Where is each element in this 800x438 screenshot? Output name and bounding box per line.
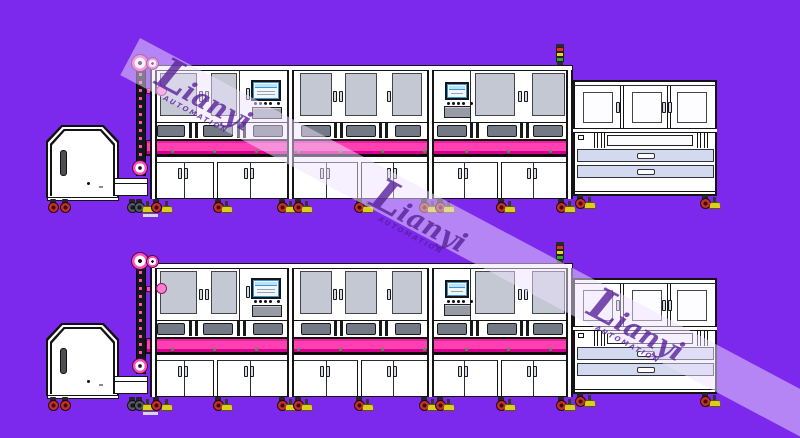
module-boundary-post-2 <box>427 268 434 397</box>
mid-level-window <box>487 125 517 137</box>
viewing-window <box>160 73 197 116</box>
mid-band-divider <box>189 123 192 138</box>
main-line-top-rail <box>150 263 573 269</box>
cabinet-handle-pair <box>244 366 254 377</box>
leveling-foot <box>161 397 171 411</box>
leveling-foot <box>161 199 171 213</box>
drawer-handle <box>637 169 655 175</box>
scale-dash-mark <box>143 412 158 415</box>
mid-band-divider <box>334 123 337 138</box>
hmi-screen-toolbar <box>449 284 465 288</box>
machine-line-drawing: Lianyi AUTOMATION Lianyi AUTOMATION Lian… <box>0 0 800 438</box>
station-window <box>583 290 613 321</box>
mid-level-window <box>253 323 283 335</box>
conveyor-band <box>146 140 574 156</box>
conveyor-sensor-dot <box>549 150 552 153</box>
hopper-side-slot <box>60 150 67 176</box>
mid-band-divider <box>340 321 343 336</box>
elevator-infeed-table <box>114 376 148 394</box>
mid-level-window <box>437 323 467 335</box>
cabinet-handle-pair <box>244 168 254 179</box>
leveling-foot <box>564 199 574 213</box>
leveling-foot <box>301 397 311 411</box>
hopper-feeder-body <box>46 323 119 396</box>
station-handle-pair <box>662 300 672 311</box>
viewing-window <box>532 73 565 116</box>
infeed-roller <box>156 283 167 294</box>
mid-band-divider <box>195 123 198 138</box>
hmi-screen <box>445 82 469 100</box>
door-handle <box>387 289 391 300</box>
station-latch <box>578 333 584 338</box>
cabinet-handle-pair <box>387 366 397 377</box>
viewing-window <box>392 271 422 314</box>
leveling-foot <box>564 397 574 411</box>
viewing-window <box>300 73 332 116</box>
viewing-window <box>211 73 237 116</box>
mid-band-divider <box>340 123 343 138</box>
production-line-2 <box>0 240 800 420</box>
cabinet-handle-pair <box>458 366 468 377</box>
elevator-idler-pulley <box>146 255 159 268</box>
station-post <box>620 86 624 128</box>
conveyor-sensor-dot <box>549 348 552 351</box>
elevator-belt-column <box>136 260 146 374</box>
cabinet-handle-pair <box>527 168 537 179</box>
station-post <box>594 133 598 148</box>
elevator-bottom-pulley <box>132 160 148 176</box>
table-top-line <box>115 381 147 382</box>
mid-band-divider <box>470 123 473 138</box>
table-top-line <box>115 183 147 184</box>
elevator-bottom-pulley <box>132 358 148 374</box>
station-post <box>601 133 605 148</box>
station-door-handle <box>616 300 620 311</box>
hmi-screen-content-line <box>451 291 463 292</box>
door-edge-line <box>239 70 240 122</box>
leveling-foot <box>504 397 514 411</box>
station-rail-line <box>574 85 716 86</box>
station-drawer <box>577 149 714 162</box>
door-edge-line <box>239 268 240 320</box>
keyboard-tray-panel <box>444 304 471 316</box>
leveling-foot <box>443 199 453 213</box>
station-handle-pair <box>662 102 672 113</box>
infeed-roller <box>156 85 167 96</box>
station-bottom-line <box>574 389 716 392</box>
panel-handle <box>246 286 250 298</box>
hopper-knob <box>87 380 90 383</box>
mid-level-window <box>253 125 283 137</box>
station-post <box>601 331 605 346</box>
hmi-screen <box>251 278 281 299</box>
elevator-infeed-table <box>114 178 148 196</box>
mid-band-divider <box>526 123 529 138</box>
hopper-feeder-face <box>48 325 117 396</box>
panel-button-row <box>254 102 280 105</box>
elevator-belt-column <box>136 62 146 176</box>
hmi-screen-content-line <box>257 91 275 92</box>
mid-band-divider <box>379 321 382 336</box>
conveyor-band <box>146 338 574 354</box>
conveyor-sensor-dot <box>297 348 300 351</box>
station-recessed-slot <box>607 333 693 344</box>
cabinet-handle-pair <box>320 366 330 377</box>
drawer-handle <box>637 153 655 159</box>
mid-level-window <box>533 323 563 335</box>
production-line-1 <box>0 42 800 222</box>
station-recessed-slot <box>607 135 693 146</box>
conveyor-sensor-dot <box>465 348 468 351</box>
leveling-foot <box>362 199 372 213</box>
conveyor-sensor-dot <box>171 348 174 351</box>
mid-level-window <box>203 125 233 137</box>
conveyor-sensor-dot <box>171 150 174 153</box>
station-window <box>583 92 613 123</box>
hmi-screen-toolbar <box>255 282 277 286</box>
leveling-foot <box>362 397 372 411</box>
station-latch <box>578 135 584 140</box>
mid-level-window <box>346 323 376 335</box>
mid-band-divider <box>189 321 192 336</box>
conveyor-sensor-dot <box>423 348 426 351</box>
mid-level-window <box>487 323 517 335</box>
door-handle-pair <box>199 91 209 102</box>
conveyor-sensor-dot <box>339 348 342 351</box>
cabinet-handle-pair <box>178 366 188 377</box>
cabinet-handle-pair <box>387 168 397 179</box>
mid-band-divider <box>520 321 523 336</box>
hopper-feeder-body <box>46 125 119 198</box>
hmi-screen-toolbar <box>449 86 465 90</box>
mid-level-window <box>301 125 331 137</box>
cabinet-unit-post <box>213 360 218 396</box>
mid-band-divider <box>237 123 240 138</box>
mid-band-divider <box>379 123 382 138</box>
hmi-screen <box>445 280 469 298</box>
panel-button-row <box>254 300 280 303</box>
station-drawer <box>577 363 714 376</box>
viewing-window <box>345 271 377 314</box>
mid-level-window <box>395 323 421 335</box>
frame-post-right <box>566 268 573 397</box>
mid-band-divider <box>195 321 198 336</box>
conveyor-sensor-dot <box>339 150 342 153</box>
hmi-screen-content-line <box>257 94 275 95</box>
leveling-foot <box>504 199 514 213</box>
panel-handle <box>246 88 250 100</box>
door-handle <box>387 91 391 102</box>
station-rail-line <box>574 283 716 284</box>
caster-wheel <box>48 199 58 213</box>
hmi-screen-toolbar <box>255 84 277 88</box>
mid-level-window <box>157 323 185 335</box>
door-handle-pair <box>333 91 343 102</box>
hmi-screen <box>251 80 281 101</box>
mid-level-window <box>395 125 421 137</box>
station-window <box>677 92 707 123</box>
panel-button-row <box>447 300 473 303</box>
caster-wheel <box>151 199 161 213</box>
mid-level-window <box>203 323 233 335</box>
viewing-window <box>160 271 197 314</box>
viewing-window <box>532 271 565 314</box>
conveyor-sensor-dot <box>255 348 258 351</box>
station-post <box>704 133 708 148</box>
viewing-window <box>211 271 237 314</box>
keyboard-tray-panel <box>444 106 471 118</box>
viewing-window <box>392 73 422 116</box>
mid-band-divider <box>520 123 523 138</box>
cabinet-handle-pair <box>458 168 468 179</box>
cabinet-unit-post <box>497 162 502 198</box>
hopper-feeder-face <box>48 127 117 198</box>
conveyor-sensor-dot <box>381 348 384 351</box>
mid-level-window <box>533 125 563 137</box>
main-line-top-rail <box>150 65 573 71</box>
station-post <box>697 133 701 148</box>
hmi-screen-content-line <box>257 289 275 290</box>
module-boundary-post-2 <box>427 70 434 199</box>
station-drawer <box>577 347 714 360</box>
conveyor-sensor-dot <box>465 150 468 153</box>
leveling-foot <box>221 397 231 411</box>
mid-band-divider <box>476 123 479 138</box>
leveling-foot <box>221 199 231 213</box>
station-window <box>632 290 662 321</box>
door-handle-pair <box>518 289 528 300</box>
cabinet-handle-pair <box>320 168 330 179</box>
conveyor-sensor-dot <box>213 348 216 351</box>
viewing-window <box>475 73 515 116</box>
viewing-window <box>300 271 332 314</box>
leveling-foot <box>443 397 453 411</box>
door-handle-pair <box>333 289 343 300</box>
caster-wheel <box>48 397 58 411</box>
cabinet-unit-post <box>497 360 502 396</box>
station-post <box>594 331 598 346</box>
hopper-mark <box>99 186 103 188</box>
conveyor-sensor-dot <box>213 150 216 153</box>
station-door-handle <box>616 102 620 113</box>
station-post <box>620 284 624 326</box>
conveyor-sensor-dot <box>423 150 426 153</box>
cabinet-handle-pair <box>527 366 537 377</box>
drawer-handle <box>637 351 655 357</box>
conveyor-sensor-dot <box>381 150 384 153</box>
station-post <box>697 331 701 346</box>
elevator-idler-pulley <box>146 57 159 70</box>
mid-band-divider <box>526 321 529 336</box>
drawer-handle <box>637 367 655 373</box>
station-drawer <box>577 165 714 178</box>
conveyor-sensor-dot <box>297 150 300 153</box>
module-boundary-post-1 <box>287 268 294 397</box>
hmi-screen-content-line <box>451 93 463 94</box>
mid-level-window <box>157 125 185 137</box>
scale-dash-mark <box>143 214 158 217</box>
mid-level-window <box>301 323 331 335</box>
cabinet-unit-post <box>213 162 218 198</box>
mid-band-divider <box>243 123 246 138</box>
mid-band-divider <box>476 321 479 336</box>
caster-wheel <box>151 397 161 411</box>
hopper-mark <box>99 384 103 386</box>
module-boundary-post-1 <box>287 70 294 199</box>
cabinet-handle-pair <box>178 168 188 179</box>
mid-level-window <box>437 125 467 137</box>
mid-band-divider <box>243 321 246 336</box>
station-bottom-line <box>574 191 716 194</box>
hopper-side-slot <box>60 348 67 374</box>
leveling-foot <box>584 393 594 407</box>
mid-band-divider <box>334 321 337 336</box>
cabinet-unit-post <box>357 360 362 396</box>
station-window <box>677 290 707 321</box>
leveling-foot <box>584 195 594 209</box>
viewing-window <box>345 73 377 116</box>
conveyor-sensor-dot <box>507 348 510 351</box>
mid-band-divider <box>237 321 240 336</box>
conveyor-sensor-dot <box>255 150 258 153</box>
mid-level-window <box>346 125 376 137</box>
leveling-foot <box>301 199 311 213</box>
mid-band-divider <box>385 321 388 336</box>
door-handle-pair <box>518 91 528 102</box>
leveling-foot <box>709 393 719 407</box>
mid-band-divider <box>385 123 388 138</box>
caster-wheel <box>60 199 70 213</box>
panel-button-row <box>447 102 473 105</box>
caster-wheel <box>60 397 70 411</box>
door-handle-pair <box>199 289 209 300</box>
keyboard-tray-panel <box>252 305 282 317</box>
viewing-window <box>475 271 515 314</box>
station-window <box>632 92 662 123</box>
keyboard-tray-panel <box>252 107 282 119</box>
mid-band-divider <box>470 321 473 336</box>
station-post <box>704 331 708 346</box>
conveyor-sensor-dot <box>507 150 510 153</box>
cabinet-unit-post <box>357 162 362 198</box>
hopper-knob <box>87 182 90 185</box>
leveling-foot <box>709 195 719 209</box>
frame-post-right <box>566 70 573 199</box>
hmi-screen-content-line <box>257 292 275 293</box>
